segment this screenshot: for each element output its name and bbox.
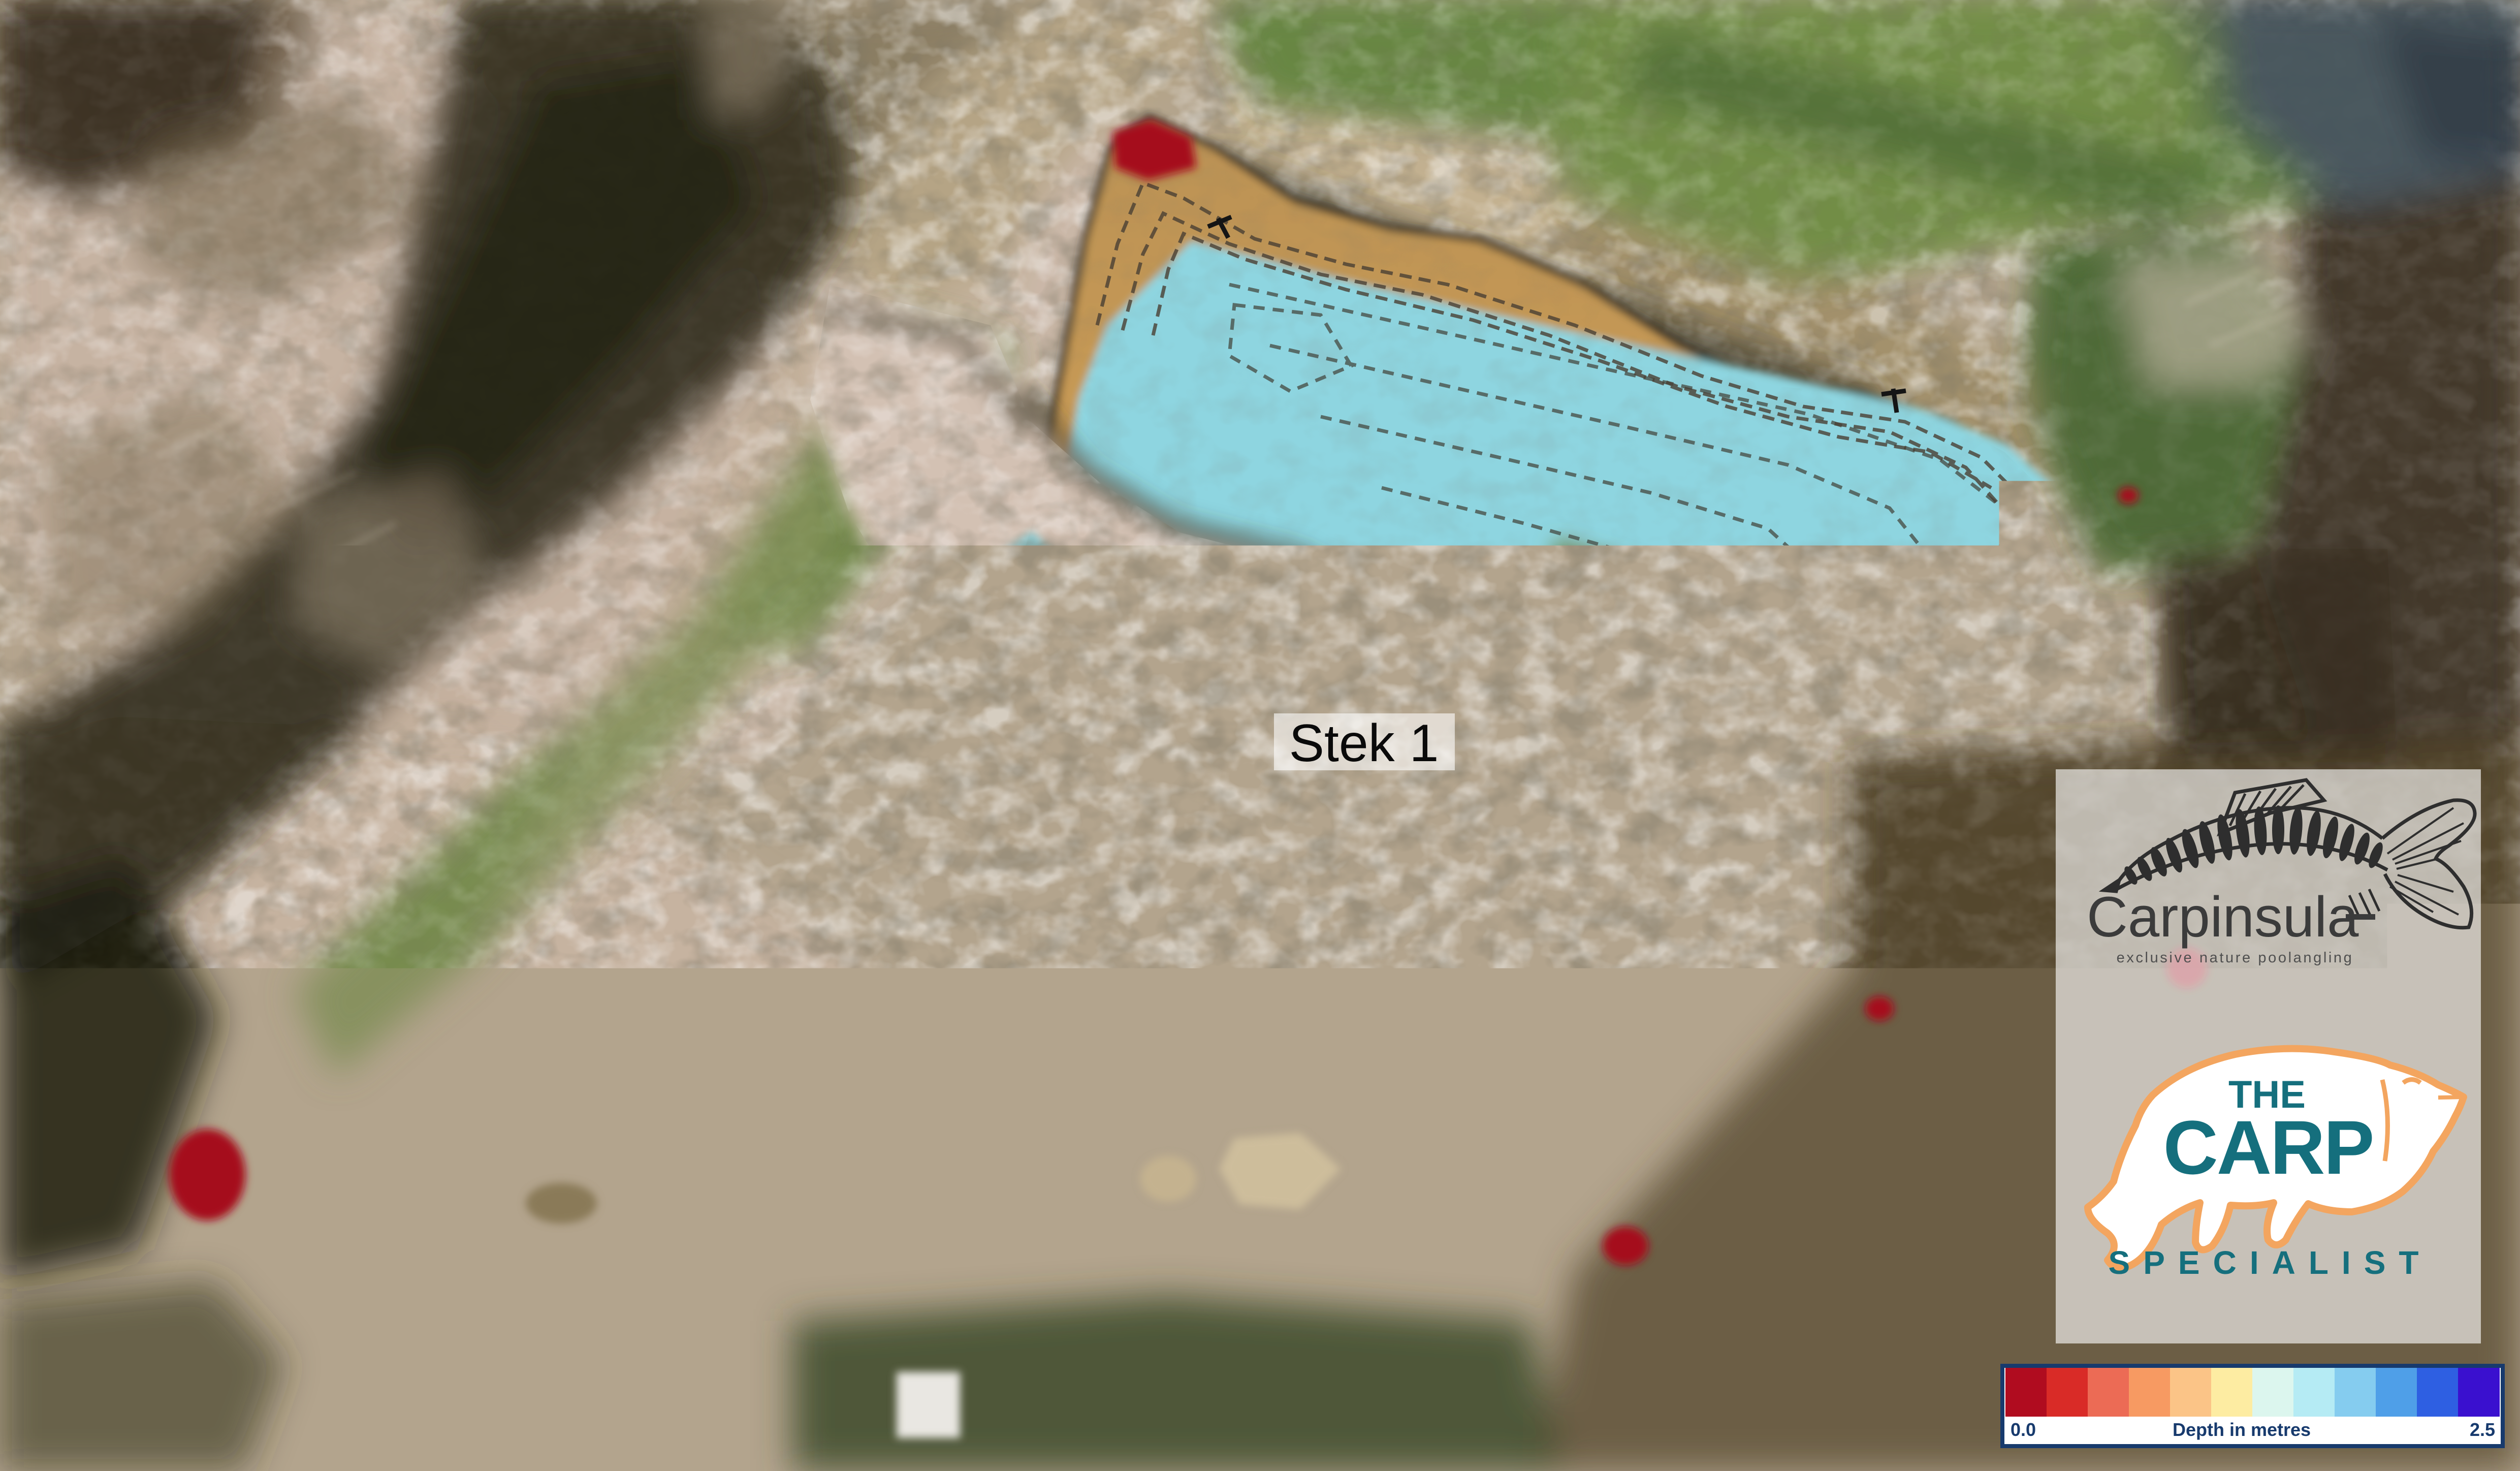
svg-text:Stek 1: Stek 1 — [1289, 714, 1439, 773]
svg-text:exclusive nature poolangling: exclusive nature poolangling — [2117, 950, 2354, 966]
svg-text:CARP: CARP — [2163, 1105, 2373, 1190]
svg-text:0.0: 0.0 — [2011, 1419, 2036, 1440]
svg-text:2.5: 2.5 — [2470, 1419, 2495, 1440]
svg-text:Carpinsula: Carpinsula — [2087, 885, 2359, 949]
svg-text:SPECIALIST: SPECIALIST — [2109, 1244, 2432, 1281]
svg-text:Depth in metres: Depth in metres — [2173, 1419, 2311, 1440]
